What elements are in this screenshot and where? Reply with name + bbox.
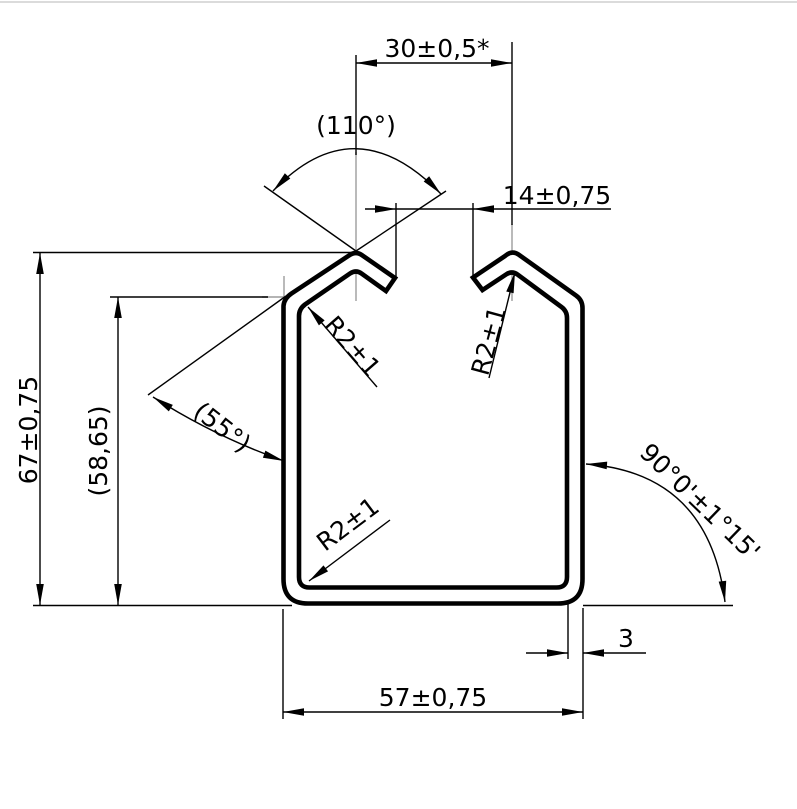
dim-arrow bbox=[547, 649, 568, 657]
dim-arrow bbox=[114, 297, 122, 318]
dim-top-width-label: 30±0,5* bbox=[384, 34, 489, 63]
radius-top-left-label: R2±1 bbox=[318, 310, 386, 382]
dimension-slot-width: 14±0,75 bbox=[365, 181, 611, 277]
radius-bottom-left-label: R2±1 bbox=[311, 492, 384, 557]
drawing-canvas: 30±0,5* (110°) 14±0,75 67±0,75 (58,65) bbox=[0, 0, 797, 809]
angle-ray bbox=[264, 186, 356, 251]
dim-arrow bbox=[719, 581, 729, 603]
dim-arrow bbox=[356, 59, 377, 67]
radius-callout-top-right: R2±1 bbox=[466, 271, 519, 378]
dim-arrow bbox=[586, 460, 607, 469]
dim-arrow bbox=[375, 205, 396, 213]
dim-thickness-label: 3 bbox=[618, 624, 634, 653]
technical-drawing: 30±0,5* (110°) 14±0,75 67±0,75 (58,65) bbox=[0, 0, 797, 809]
dimension-angle-110: (110°) bbox=[264, 111, 446, 251]
angle-ray bbox=[356, 191, 446, 251]
dim-arrow bbox=[562, 708, 583, 716]
angle-110-label: (110°) bbox=[316, 111, 396, 140]
dim-arrow bbox=[36, 584, 44, 605]
dim-inner-height-label: (58,65) bbox=[84, 405, 113, 496]
angle-90-label: 90°0'±1°15' bbox=[634, 438, 766, 567]
dimension-thickness: 3 bbox=[526, 601, 646, 659]
dim-arrow bbox=[307, 565, 328, 584]
dim-arrow bbox=[283, 708, 304, 716]
dim-arrow bbox=[473, 205, 494, 213]
angle-55-label: (55°) bbox=[188, 396, 256, 458]
dim-arrow bbox=[583, 649, 604, 657]
dimension-angle-55: (55°) bbox=[148, 296, 286, 465]
dim-bottom-width-label: 57±0,75 bbox=[379, 683, 487, 712]
radius-top-right-label: R2±1 bbox=[466, 303, 512, 378]
dim-arrow bbox=[151, 394, 173, 412]
dim-height-label: 67±0,75 bbox=[14, 376, 43, 484]
dim-arrow bbox=[491, 59, 512, 67]
dim-arrow bbox=[114, 584, 122, 605]
angle-ray bbox=[148, 296, 286, 395]
angle-arc bbox=[273, 149, 441, 194]
dim-arrow bbox=[36, 253, 44, 274]
dim-slot-width-label: 14±0,75 bbox=[503, 181, 611, 210]
dimension-angle-90: 90°0'±1°15' bbox=[583, 438, 766, 606]
dimension-bottom-width: 57±0,75 bbox=[283, 608, 583, 719]
radius-callout-bottom-left: R2±1 bbox=[307, 492, 390, 585]
radius-callout-top-left: R2±1 bbox=[305, 305, 386, 387]
